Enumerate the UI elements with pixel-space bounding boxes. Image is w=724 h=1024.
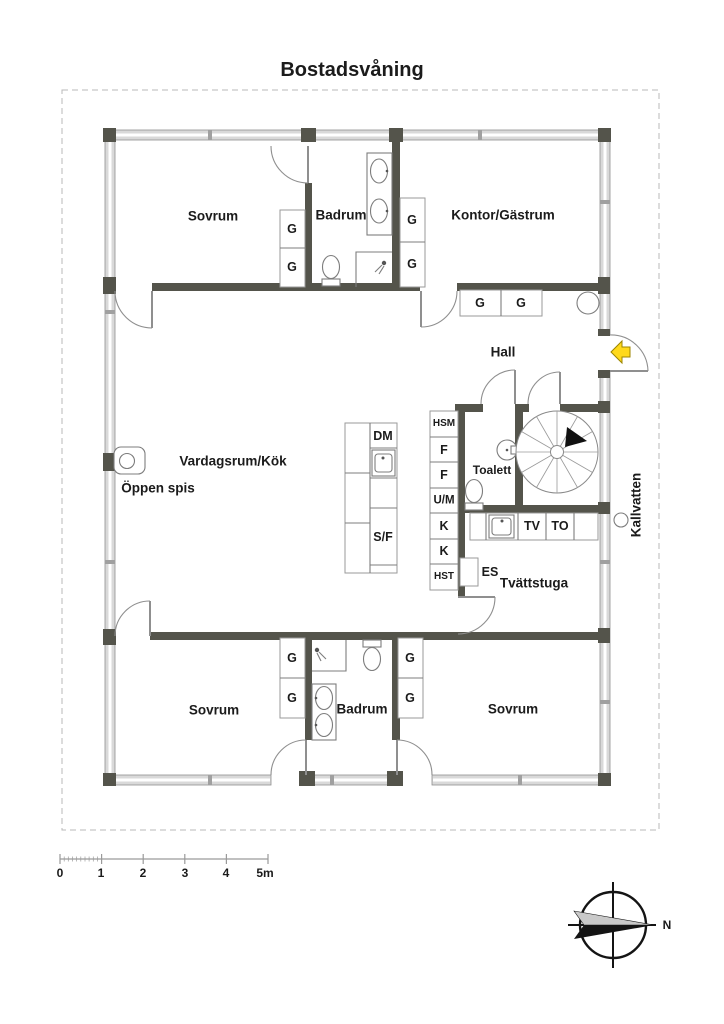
shower	[356, 252, 392, 287]
scale-label-4: 4	[223, 867, 230, 879]
floor-plan-page: Bostadsvåning Sovrum Badrum Kontor/Gästr…	[0, 0, 724, 1024]
cold-water-point	[614, 513, 628, 527]
wardrobe-label: G	[407, 214, 417, 227]
compass-icon	[568, 882, 656, 968]
cold-water-label: Kallvatten	[629, 473, 643, 538]
room-label-bathroom-bottom: Badrum	[336, 702, 387, 716]
toilet-icon	[322, 256, 340, 287]
um-label: U/M	[433, 495, 454, 507]
freezer-label: F	[440, 469, 448, 482]
bathroom-bottom-fixtures	[312, 640, 381, 740]
room-label-bedroom-bottom-left: Sovrum	[189, 703, 239, 717]
fridge-freezer-label: S/F	[373, 531, 392, 544]
shower	[312, 640, 346, 671]
sink-icon	[316, 687, 333, 710]
fridge-label: K	[439, 520, 448, 533]
freezer-label: F	[440, 444, 448, 457]
north-label: N	[663, 919, 672, 931]
toilet-icon	[465, 480, 483, 511]
floor-plan-drawing	[0, 0, 724, 1024]
room-label-office-guestroom: Kontor/Gästrum	[451, 208, 555, 222]
hall-round-table	[577, 292, 599, 314]
es-label: ES	[482, 566, 499, 579]
hsm-label: HSM	[433, 419, 455, 429]
room-label-hall: Hall	[491, 345, 516, 359]
wardrobe-label: G	[405, 652, 415, 665]
wardrobe-label: G	[516, 297, 526, 310]
dishwasher-label: DM	[373, 430, 392, 443]
entrance-arrow-icon	[611, 341, 630, 363]
room-label-living-kitchen: Vardagsrum/Kök	[179, 454, 286, 468]
wardrobe-label: G	[287, 692, 297, 705]
dryer-label: TO	[551, 520, 568, 533]
es-unit	[460, 558, 478, 586]
sink-icon	[371, 159, 388, 183]
wardrobe-label: G	[475, 297, 485, 310]
fireplace-icon	[114, 447, 145, 474]
laundry-sink-icon	[489, 515, 514, 538]
label-open-fireplace: Öppen spis	[121, 481, 195, 495]
scale-bar	[60, 854, 268, 864]
room-label-bathroom-top: Badrum	[315, 208, 366, 222]
room-label-laundry: Tvättstuga	[500, 576, 568, 590]
shower-head-icon	[315, 648, 326, 661]
scale-label-5m: 5m	[256, 867, 273, 879]
wardrobe-label: G	[287, 223, 297, 236]
sink-icon	[316, 714, 333, 737]
fridge-label: K	[439, 545, 448, 558]
scale-label-2: 2	[140, 867, 147, 879]
toilet-icon	[363, 640, 381, 671]
room-label-bedroom-top: Sovrum	[188, 209, 238, 223]
scale-label-0: 0	[57, 867, 64, 879]
scale-label-1: 1	[98, 867, 105, 879]
spiral-staircase	[516, 411, 598, 493]
room-label-bedroom-bottom-right: Sovrum	[488, 702, 538, 716]
hst-label: HST	[434, 572, 454, 582]
washer-label: TV	[524, 520, 540, 533]
wardrobe-label: G	[287, 652, 297, 665]
page-title: Bostadsvåning	[280, 60, 423, 80]
wardrobe-label: G	[407, 258, 417, 271]
kitchen-island	[345, 423, 397, 573]
wardrobe-label: G	[405, 692, 415, 705]
room-label-toilet: Toalett	[473, 464, 511, 476]
shower-head-icon	[375, 261, 386, 274]
scale-label-3: 3	[182, 867, 189, 879]
wardrobe-label: G	[287, 261, 297, 274]
sink-icon	[371, 199, 388, 223]
kitchen-sink-icon	[372, 450, 395, 476]
